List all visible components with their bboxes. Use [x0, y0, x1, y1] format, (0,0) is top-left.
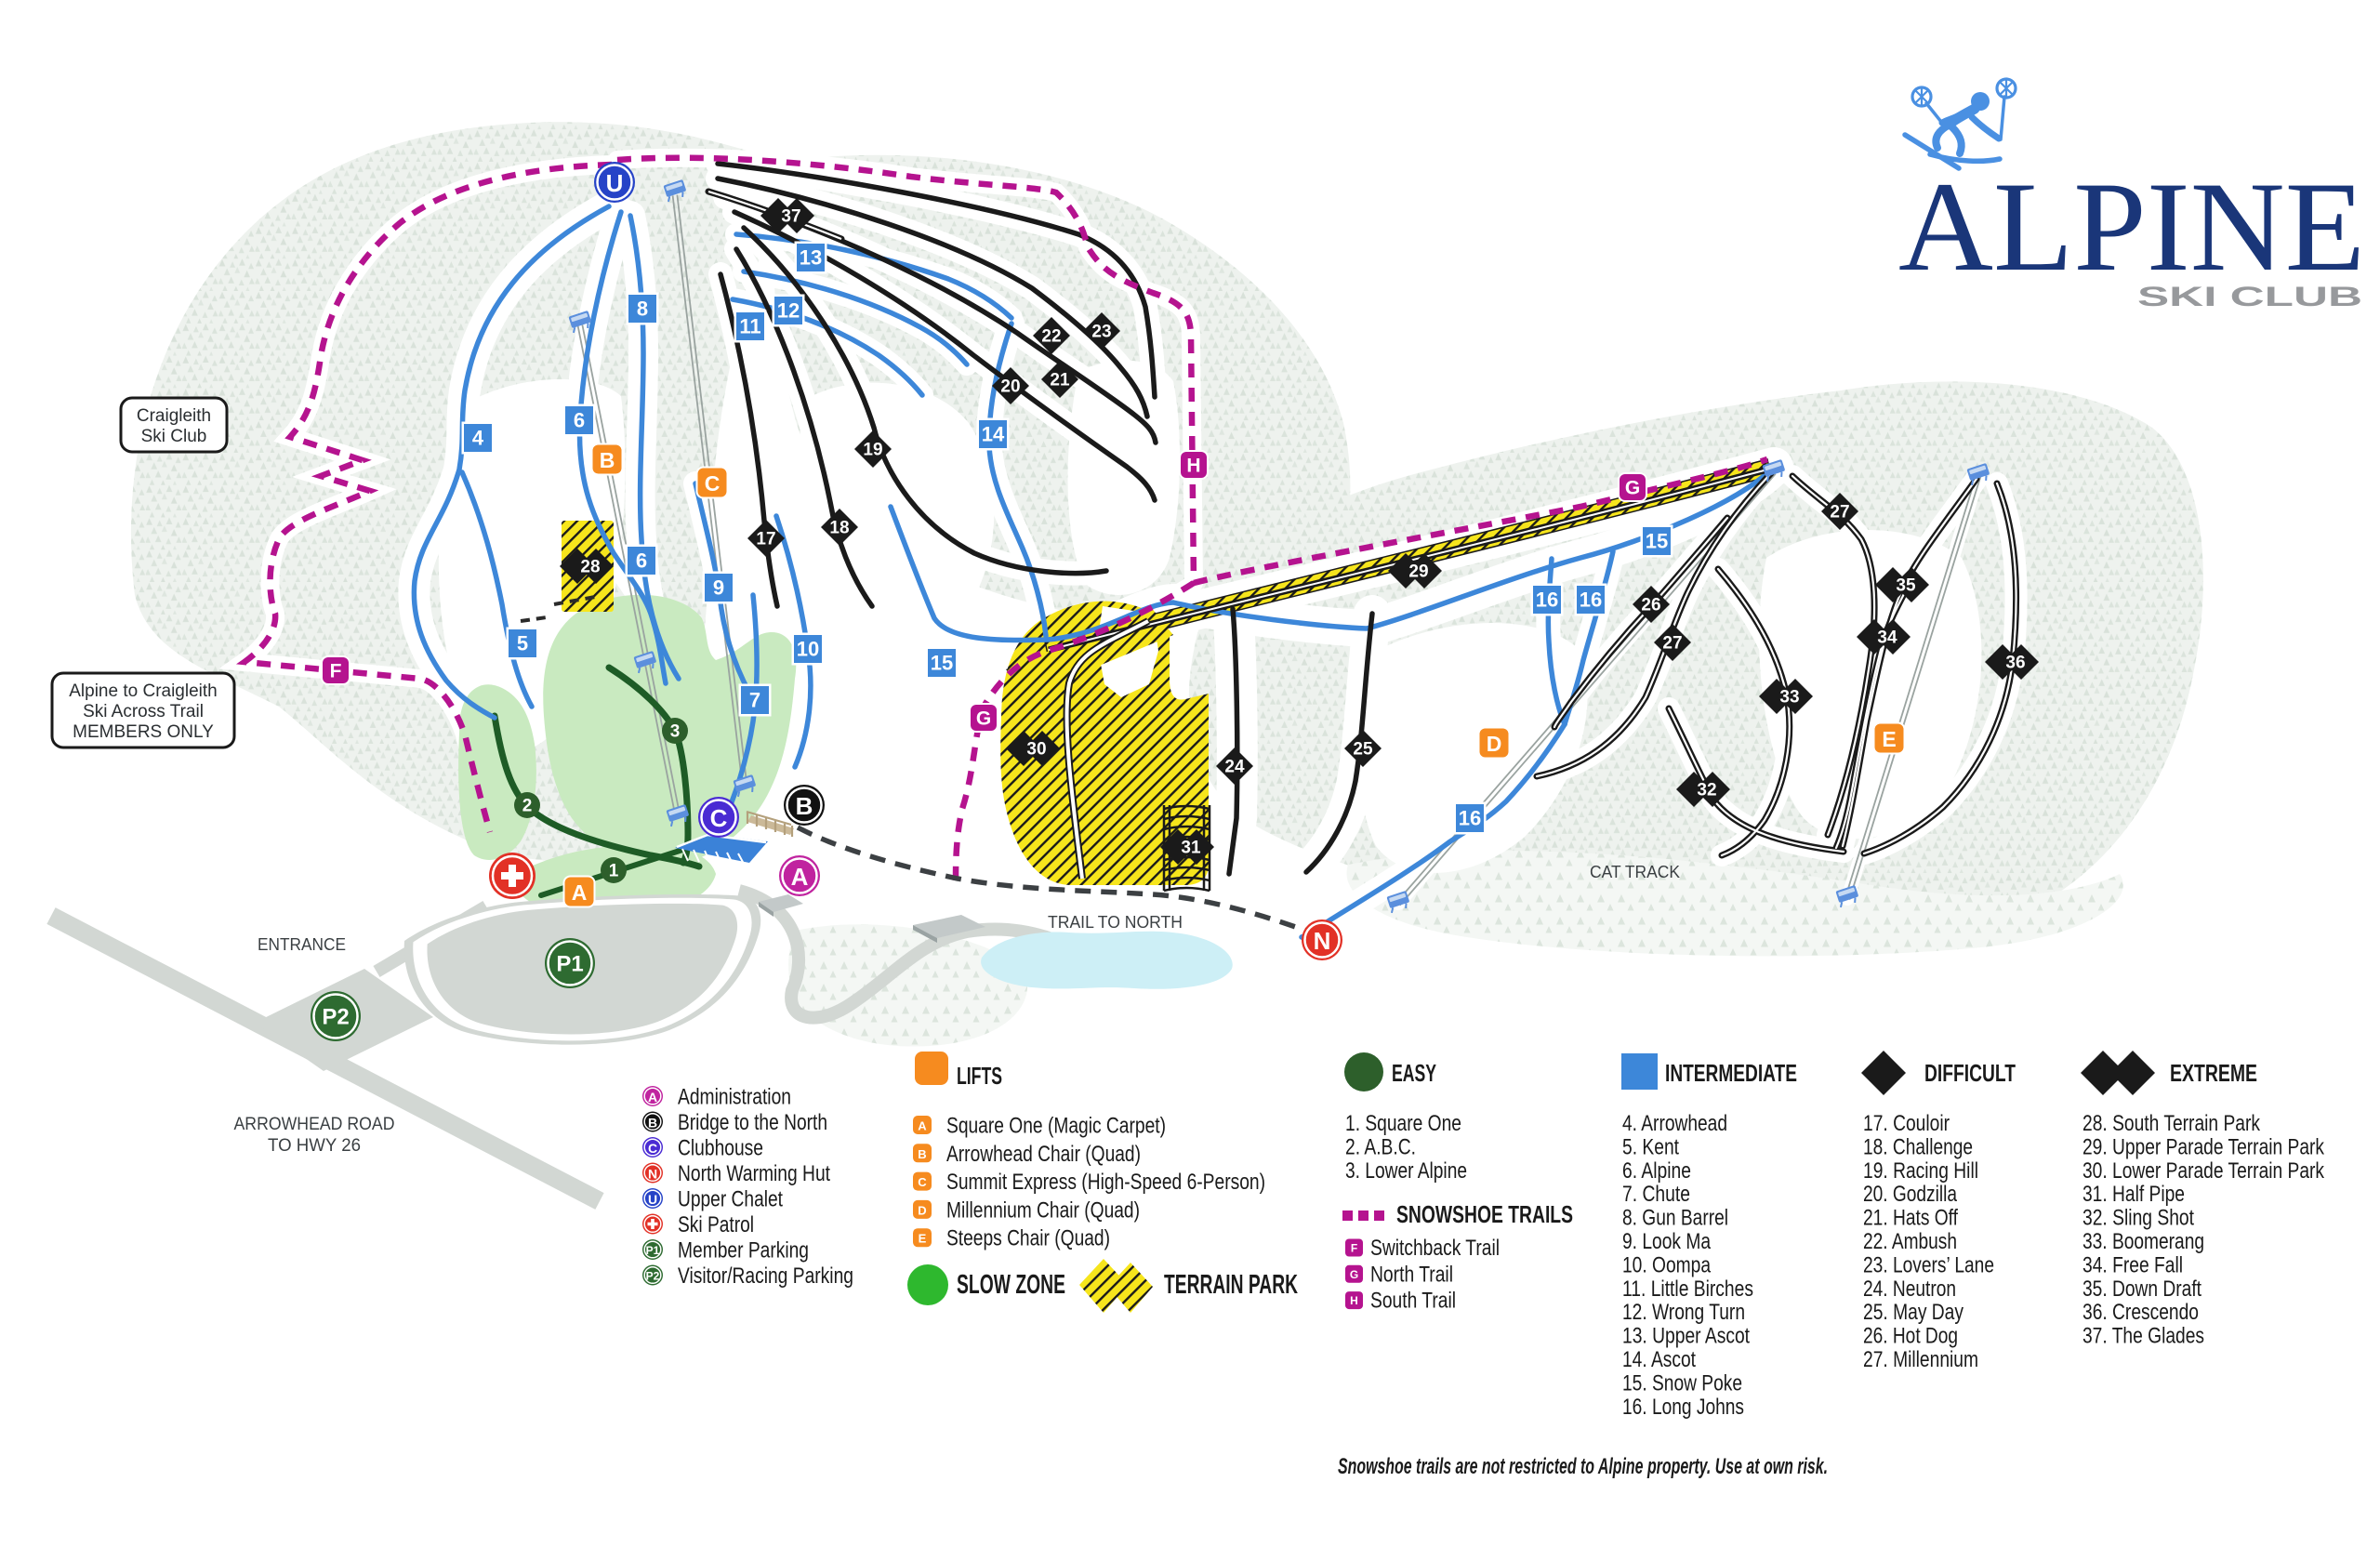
- svg-text:17. Couloir: 17. Couloir: [1863, 1111, 1950, 1136]
- svg-text:P2: P2: [322, 1005, 349, 1030]
- svg-text:G: G: [1350, 1268, 1358, 1281]
- svg-text:U: U: [648, 1192, 657, 1207]
- svg-text:A: A: [572, 880, 588, 905]
- svg-text:C: C: [648, 1141, 657, 1156]
- svg-text:Visitor/Racing Parking: Visitor/Racing Parking: [678, 1263, 853, 1289]
- svg-text:8. Gun Barrel: 8. Gun Barrel: [1622, 1206, 1728, 1231]
- svg-text:36. Crescendo: 36. Crescendo: [2082, 1300, 2199, 1325]
- svg-text:28: 28: [580, 558, 600, 577]
- svg-text:34: 34: [1877, 628, 1897, 648]
- svg-text:Ski Patrol: Ski Patrol: [678, 1212, 754, 1237]
- svg-text:Ski Across Trail: Ski Across Trail: [83, 702, 204, 721]
- svg-text:TO HWY 26: TO HWY 26: [268, 1136, 361, 1156]
- svg-text:16: 16: [1536, 589, 1558, 612]
- svg-text:MEMBERS ONLY: MEMBERS ONLY: [73, 722, 214, 742]
- svg-text:2: 2: [522, 797, 533, 816]
- svg-text:A: A: [791, 863, 809, 891]
- svg-text:12. Wrong Turn: 12. Wrong Turn: [1622, 1300, 1745, 1325]
- svg-text:TRAIL TO NORTH: TRAIL TO NORTH: [1048, 913, 1183, 932]
- svg-text:C: C: [705, 471, 721, 496]
- svg-text:14: 14: [982, 423, 1005, 446]
- svg-text:P2: P2: [646, 1270, 660, 1283]
- svg-text:26: 26: [1641, 596, 1660, 615]
- svg-text:22: 22: [1041, 327, 1061, 347]
- svg-text:6. Alpine: 6. Alpine: [1622, 1158, 1691, 1184]
- svg-text:16. Long Johns: 16. Long Johns: [1622, 1395, 1744, 1420]
- svg-text:11. Little Birches: 11. Little Birches: [1622, 1277, 1753, 1302]
- svg-text:Craigleith: Craigleith: [137, 406, 211, 426]
- svg-text:B: B: [796, 792, 813, 820]
- svg-text:Arrowhead Chair (Quad): Arrowhead Chair (Quad): [946, 1142, 1141, 1167]
- svg-text:23: 23: [1091, 323, 1111, 342]
- svg-text:P1: P1: [556, 952, 583, 977]
- svg-text:12: 12: [777, 299, 800, 323]
- svg-text:3: 3: [670, 722, 681, 742]
- svg-text:1. Square One: 1. Square One: [1345, 1111, 1461, 1136]
- svg-text:37: 37: [781, 207, 800, 227]
- svg-text:SLOW ZONE: SLOW ZONE: [957, 1270, 1065, 1300]
- svg-text:16: 16: [1459, 807, 1481, 830]
- svg-text:CAT TRACK: CAT TRACK: [1590, 863, 1680, 881]
- svg-text:15: 15: [931, 652, 953, 675]
- svg-text:4: 4: [472, 427, 484, 450]
- svg-text:Snowshoe trails are not restri: Snowshoe trails are not restricted to Al…: [1338, 1454, 1828, 1479]
- svg-text:27: 27: [1662, 634, 1682, 654]
- svg-text:27: 27: [1830, 503, 1849, 523]
- svg-text:Ski Club: Ski Club: [141, 427, 207, 446]
- svg-text:31. Half Pipe: 31. Half Pipe: [2082, 1182, 2185, 1207]
- svg-text:30. Lower Parade Terrain Park: 30. Lower Parade Terrain Park: [2082, 1158, 2325, 1184]
- svg-text:Summit Express (High-Speed 6-P: Summit Express (High-Speed 6-Person): [946, 1170, 1265, 1195]
- svg-text:31: 31: [1181, 839, 1201, 858]
- svg-text:19. Racing Hill: 19. Racing Hill: [1863, 1158, 1978, 1184]
- svg-text:8: 8: [637, 298, 648, 321]
- svg-text:E: E: [1882, 727, 1896, 751]
- svg-text:30: 30: [1026, 740, 1046, 760]
- svg-text:22. Ambush: 22. Ambush: [1863, 1229, 1957, 1254]
- svg-text:29. Upper Parade Terrain Park: 29. Upper Parade Terrain Park: [2082, 1134, 2325, 1159]
- svg-text:N: N: [1314, 927, 1331, 955]
- svg-text:17: 17: [756, 530, 775, 549]
- svg-text:24: 24: [1224, 758, 1245, 777]
- svg-text:H: H: [1350, 1294, 1358, 1307]
- svg-text:26. Hot Dog: 26. Hot Dog: [1863, 1324, 1958, 1349]
- svg-text:33. Boomerang: 33. Boomerang: [2082, 1229, 2204, 1254]
- svg-text:24. Neutron: 24. Neutron: [1863, 1277, 1956, 1302]
- svg-text:Administration: Administration: [678, 1085, 791, 1110]
- svg-text:B: B: [648, 1116, 657, 1131]
- svg-text:18: 18: [829, 519, 849, 538]
- svg-text:Upper Chalet: Upper Chalet: [678, 1187, 783, 1212]
- svg-text:TERRAIN PARK: TERRAIN PARK: [1164, 1270, 1298, 1300]
- svg-text:18. Challenge: 18. Challenge: [1863, 1134, 1973, 1159]
- svg-text:6: 6: [636, 549, 647, 573]
- svg-text:35: 35: [1896, 576, 1916, 596]
- svg-text:B: B: [600, 448, 615, 472]
- svg-text:25. May Day: 25. May Day: [1863, 1300, 1963, 1325]
- svg-text:P1: P1: [646, 1244, 660, 1257]
- svg-text:Switchback Trail: Switchback Trail: [1370, 1236, 1500, 1261]
- svg-text:13. Upper Ascot: 13. Upper Ascot: [1622, 1324, 1750, 1349]
- svg-text:Clubhouse: Clubhouse: [678, 1136, 763, 1161]
- svg-text:3. Lower Alpine: 3. Lower Alpine: [1345, 1158, 1467, 1184]
- svg-text:Steeps Chair (Quad): Steeps Chair (Quad): [946, 1226, 1110, 1251]
- svg-text:34. Free Fall: 34. Free Fall: [2082, 1252, 2183, 1277]
- svg-text:ALPINE: ALPINE: [1898, 155, 2365, 298]
- svg-text:INTERMEDIATE: INTERMEDIATE: [1665, 1059, 1797, 1087]
- svg-text:N: N: [648, 1167, 657, 1182]
- svg-text:ARROWHEAD ROAD: ARROWHEAD ROAD: [234, 1115, 395, 1134]
- svg-text:35. Down Draft: 35. Down Draft: [2082, 1277, 2201, 1302]
- svg-text:6: 6: [574, 409, 585, 432]
- svg-text:1: 1: [609, 862, 619, 881]
- svg-text:9. Look Ma: 9. Look Ma: [1622, 1229, 1712, 1254]
- svg-text:7: 7: [749, 689, 760, 712]
- svg-text:A: A: [648, 1090, 657, 1105]
- svg-text:D: D: [918, 1203, 926, 1217]
- svg-text:D: D: [1487, 732, 1502, 756]
- svg-text:10. Oompa: 10. Oompa: [1622, 1252, 1712, 1277]
- svg-text:13: 13: [800, 246, 822, 270]
- svg-text:2. A.B.C.: 2. A.B.C.: [1345, 1135, 1416, 1160]
- svg-text:SNOWSHOE TRAILS: SNOWSHOE TRAILS: [1396, 1200, 1573, 1228]
- svg-text:Member Parking: Member Parking: [678, 1238, 809, 1263]
- svg-text:9: 9: [713, 576, 724, 600]
- svg-text:C: C: [710, 804, 728, 832]
- svg-text:Alpine to Craigleith: Alpine to Craigleith: [69, 681, 217, 701]
- svg-text:10: 10: [797, 638, 819, 661]
- svg-text:LIFTS: LIFTS: [957, 1062, 1002, 1090]
- svg-text:20: 20: [1000, 377, 1020, 397]
- svg-text:G: G: [976, 708, 991, 730]
- svg-text:32. Sling Shot: 32. Sling Shot: [2082, 1206, 2194, 1231]
- svg-text:14. Ascot: 14. Ascot: [1622, 1347, 1696, 1372]
- svg-text:33: 33: [1779, 688, 1799, 708]
- svg-text:Millennium Chair (Quad): Millennium Chair (Quad): [946, 1197, 1140, 1223]
- svg-text:32: 32: [1697, 781, 1716, 800]
- svg-text:25: 25: [1353, 740, 1373, 760]
- svg-text:U: U: [606, 169, 624, 197]
- svg-text:28. South Terrain Park: 28. South Terrain Park: [2082, 1111, 2261, 1136]
- svg-text:H: H: [1186, 456, 1200, 477]
- svg-text:5: 5: [517, 632, 528, 655]
- svg-text:20. Godzilla: 20. Godzilla: [1863, 1182, 1958, 1207]
- svg-text:DIFFICULT: DIFFICULT: [1924, 1059, 2016, 1087]
- svg-text:North Trail: North Trail: [1370, 1262, 1453, 1287]
- svg-text:EASY: EASY: [1392, 1059, 1436, 1087]
- svg-text:ENTRANCE: ENTRANCE: [258, 935, 346, 954]
- svg-text:21. Hats Off: 21. Hats Off: [1863, 1206, 1958, 1231]
- svg-text:Square One (Magic Carpet): Square One (Magic Carpet): [946, 1114, 1166, 1139]
- svg-text:11: 11: [739, 315, 760, 338]
- svg-text:A: A: [918, 1119, 927, 1133]
- svg-text:Bridge to the North: Bridge to the North: [678, 1110, 827, 1135]
- svg-text:E: E: [919, 1232, 927, 1246]
- svg-text:5. Kent: 5. Kent: [1622, 1134, 1679, 1159]
- svg-text:19: 19: [863, 441, 882, 460]
- svg-text:37. The Glades: 37. The Glades: [2082, 1324, 2204, 1349]
- svg-text:B: B: [918, 1147, 926, 1161]
- svg-text:South Trail: South Trail: [1370, 1289, 1456, 1314]
- svg-text:EXTREME: EXTREME: [2170, 1059, 2257, 1087]
- svg-text:C: C: [918, 1175, 927, 1189]
- svg-text:7. Chute: 7. Chute: [1622, 1182, 1690, 1207]
- svg-text:27. Millennium: 27. Millennium: [1863, 1347, 1978, 1372]
- svg-text:15: 15: [1646, 530, 1668, 553]
- svg-text:21: 21: [1050, 371, 1070, 390]
- svg-text:North Warming Hut: North Warming Hut: [678, 1161, 830, 1186]
- svg-text:G: G: [1625, 478, 1640, 499]
- svg-text:16: 16: [1580, 589, 1602, 612]
- svg-text:15. Snow Poke: 15. Snow Poke: [1622, 1370, 1742, 1396]
- svg-text:29: 29: [1408, 562, 1428, 582]
- svg-text:SKI CLUB: SKI CLUB: [2137, 282, 2362, 312]
- svg-text:36: 36: [2005, 654, 2025, 673]
- svg-text:4. Arrowhead: 4. Arrowhead: [1622, 1111, 1727, 1136]
- svg-text:F: F: [1351, 1242, 1357, 1255]
- svg-text:23. Lovers’ Lane: 23. Lovers’ Lane: [1863, 1252, 1994, 1277]
- svg-text:F: F: [330, 661, 342, 682]
